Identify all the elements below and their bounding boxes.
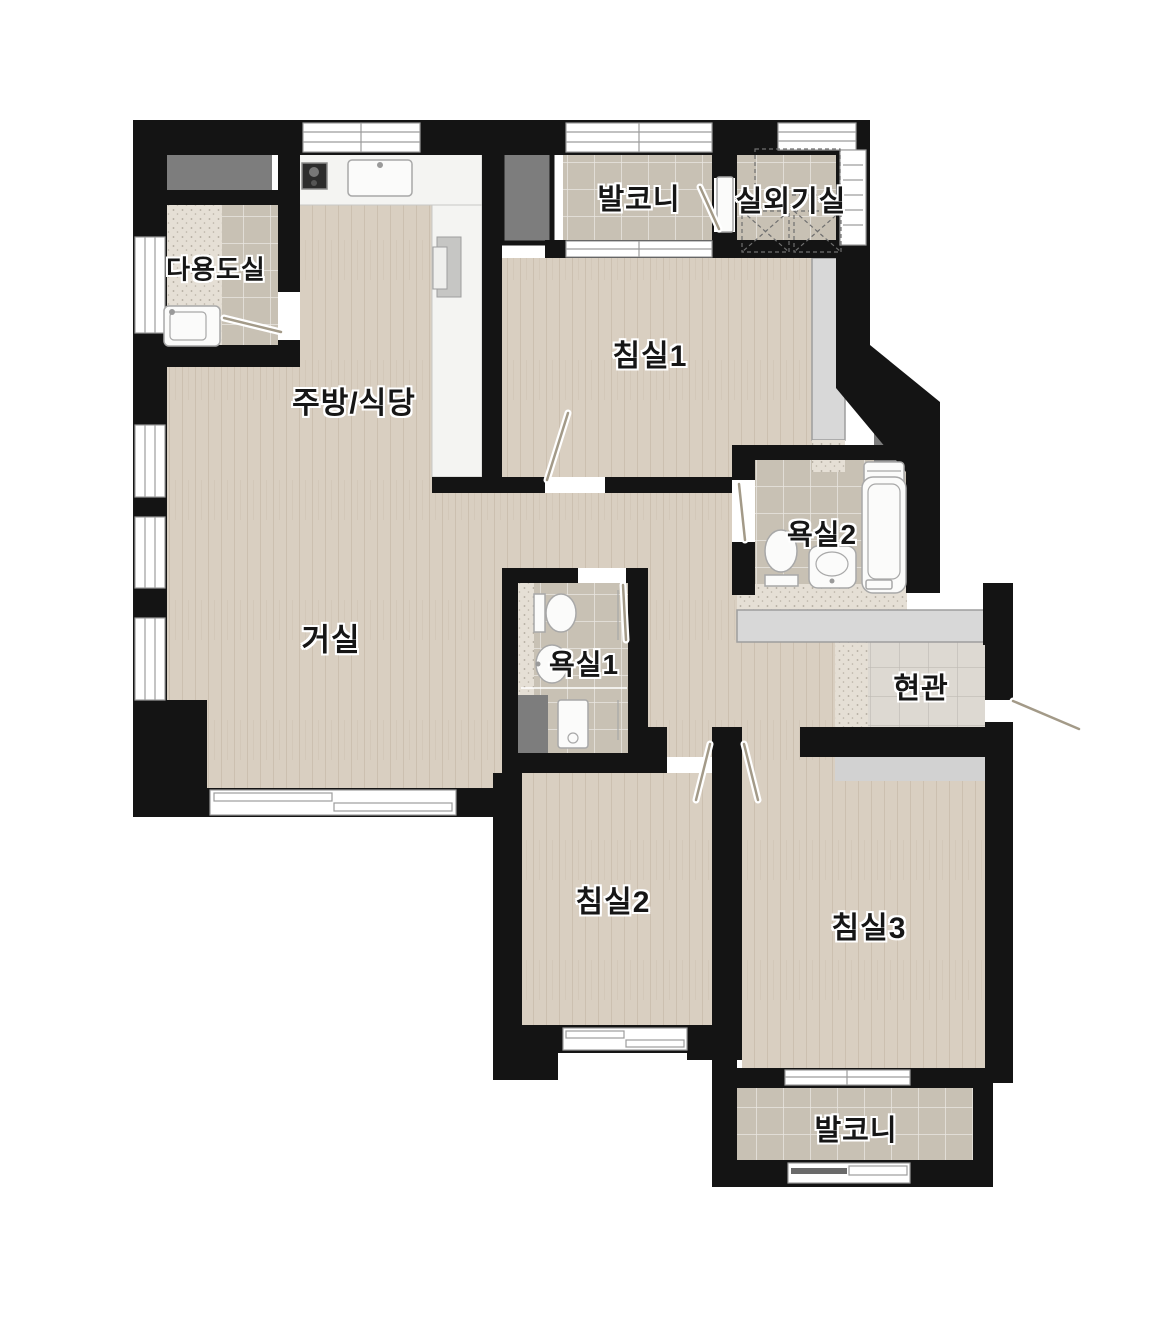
window-living-bottom bbox=[210, 790, 456, 815]
room-label-bath1: 욕실1 bbox=[549, 643, 619, 683]
utility-faucet bbox=[169, 309, 175, 315]
room-label-utility: 다용도실 bbox=[166, 250, 266, 287]
stove-burner bbox=[311, 180, 317, 186]
window-bedroom1-balcony bbox=[566, 241, 712, 257]
bath1-door bbox=[623, 585, 626, 640]
bath1-sink-faucet bbox=[536, 662, 541, 667]
bath1-threshold bbox=[518, 583, 534, 695]
entrance-front-door bbox=[1013, 701, 1079, 729]
window-bedroom3-balcony bbox=[785, 1070, 910, 1085]
window-bedroom2-bottom bbox=[563, 1028, 687, 1050]
window-balcony-bottom bbox=[788, 1163, 910, 1183]
room-label-bedroom2: 침실2 bbox=[576, 877, 651, 921]
bath1-shower bbox=[558, 700, 588, 748]
stove-burner bbox=[309, 167, 319, 177]
window-utility-left bbox=[135, 237, 165, 333]
bath2-tub-faucet bbox=[866, 580, 892, 589]
duct-box-kitchen-right bbox=[502, 150, 552, 243]
duct-box-bath1 bbox=[518, 695, 548, 755]
window-living-left-2 bbox=[135, 517, 165, 588]
fridge-panel-inner bbox=[433, 247, 447, 289]
window-living-left-3 bbox=[135, 618, 165, 700]
opening-bedroom1-door bbox=[545, 477, 605, 493]
room-label-balcony-top: 발코니 bbox=[597, 176, 680, 218]
window-kitchen-top bbox=[303, 123, 420, 152]
room-label-bedroom3: 침실3 bbox=[832, 903, 907, 947]
opening-entrance-door bbox=[985, 700, 1013, 722]
bath1-toilet-tank bbox=[534, 594, 545, 632]
opening-bath1-door bbox=[578, 568, 626, 583]
room-label-balcony-bottom: 발코니 bbox=[814, 1107, 897, 1149]
room-label-entrance: 현관 bbox=[893, 665, 948, 707]
bath2-toilet-tank bbox=[765, 575, 798, 586]
entrance-bottom-sill bbox=[835, 757, 985, 781]
window-balcony-top bbox=[566, 123, 712, 152]
floorplan-page: 다용도실 주방/식당 발코니 실외기실 침실1 욕실2 거실 욕실1 현관 침실… bbox=[0, 0, 1160, 1325]
entrance-threshold bbox=[835, 642, 868, 727]
window-outdoor-unit-top bbox=[778, 123, 856, 150]
room-label-bedroom1: 침실1 bbox=[613, 331, 688, 375]
bath2-sink-faucet bbox=[830, 579, 835, 584]
bath1-toilet-bowl bbox=[546, 594, 576, 632]
room-label-kitchen-dining: 주방/식당 bbox=[292, 378, 416, 422]
duct-box-top-left bbox=[160, 150, 272, 193]
window-living-left-1 bbox=[135, 425, 165, 497]
room-label-bath2: 욕실2 bbox=[787, 513, 857, 553]
kitchen-faucet bbox=[377, 162, 383, 168]
entrance-shoe-closet bbox=[737, 610, 985, 642]
room-label-outdoor-unit: 실외기실 bbox=[736, 178, 847, 220]
room-label-living: 거실 bbox=[301, 615, 360, 660]
